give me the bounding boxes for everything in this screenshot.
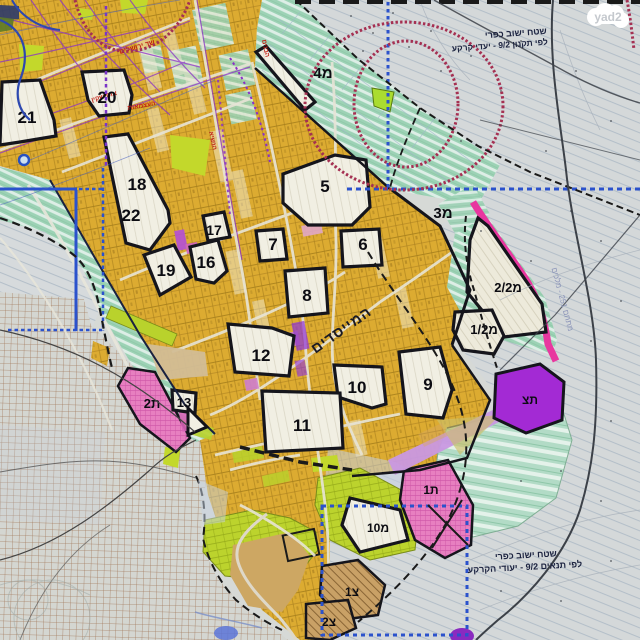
- svg-text:תצ: תצ: [522, 393, 538, 407]
- svg-text:12: 12: [252, 346, 271, 365]
- svg-text:16: 16: [197, 253, 216, 272]
- svg-text:22: 22: [122, 206, 141, 225]
- svg-text:2/2מ: 2/2מ: [494, 280, 522, 295]
- svg-text:8: 8: [302, 286, 311, 305]
- svg-text:10: 10: [348, 378, 367, 397]
- svg-text:yad2: yad2: [594, 10, 622, 24]
- svg-text:19: 19: [157, 261, 176, 280]
- svg-text:6: 6: [358, 235, 367, 254]
- svg-text:18: 18: [128, 175, 147, 194]
- svg-text:9: 9: [423, 375, 432, 394]
- svg-text:2צ: 2צ: [322, 615, 336, 629]
- svg-text:17: 17: [206, 222, 222, 238]
- svg-text:11: 11: [293, 416, 311, 435]
- svg-text:10מ: 10מ: [367, 521, 389, 535]
- svg-text:1ת: 1ת: [423, 483, 438, 497]
- svg-text:3מ: 3מ: [433, 205, 452, 222]
- svg-text:13: 13: [177, 395, 191, 410]
- svg-text:1צ: 1צ: [345, 585, 359, 599]
- svg-text:7: 7: [268, 235, 277, 254]
- svg-text:5: 5: [320, 177, 329, 196]
